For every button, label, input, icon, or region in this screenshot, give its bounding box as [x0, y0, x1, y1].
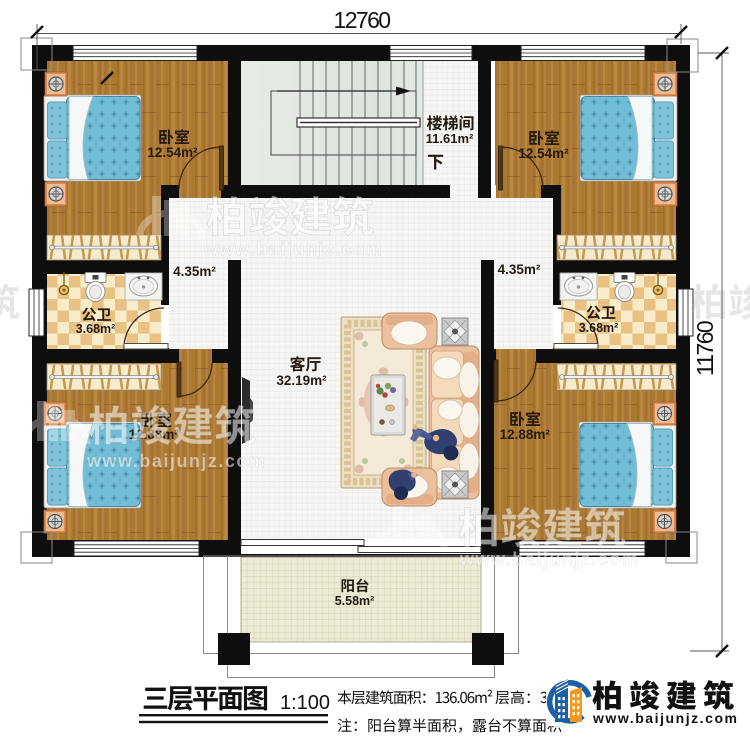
svg-text:www.baijunjz.com: www.baijunjz.com	[86, 451, 266, 471]
svg-text:11760: 11760	[692, 321, 718, 376]
svg-text:12.88m²: 12.88m²	[500, 427, 551, 442]
svg-text:4.35m²: 4.35m²	[498, 262, 541, 277]
svg-text:12.54m²: 12.54m²	[518, 146, 569, 161]
svg-text:4.35m²: 4.35m²	[173, 264, 216, 279]
svg-text:www.baijunjz.com: www.baijunjz.com	[459, 549, 639, 569]
svg-text:11.61m²: 11.61m²	[426, 131, 474, 146]
svg-text:32.19m²: 32.19m²	[276, 373, 327, 388]
svg-text:5.58m²: 5.58m²	[335, 594, 375, 608]
svg-text:1:100: 1:100	[280, 692, 330, 714]
svg-text:3.68m²: 3.68m²	[579, 321, 619, 335]
svg-text:www.baijunjz.com: www.baijunjz.com	[203, 239, 383, 259]
svg-text:3.68m²: 3.68m²	[76, 322, 116, 336]
svg-text:12.54m²: 12.54m²	[147, 145, 198, 160]
svg-text:12760: 12760	[334, 7, 391, 33]
